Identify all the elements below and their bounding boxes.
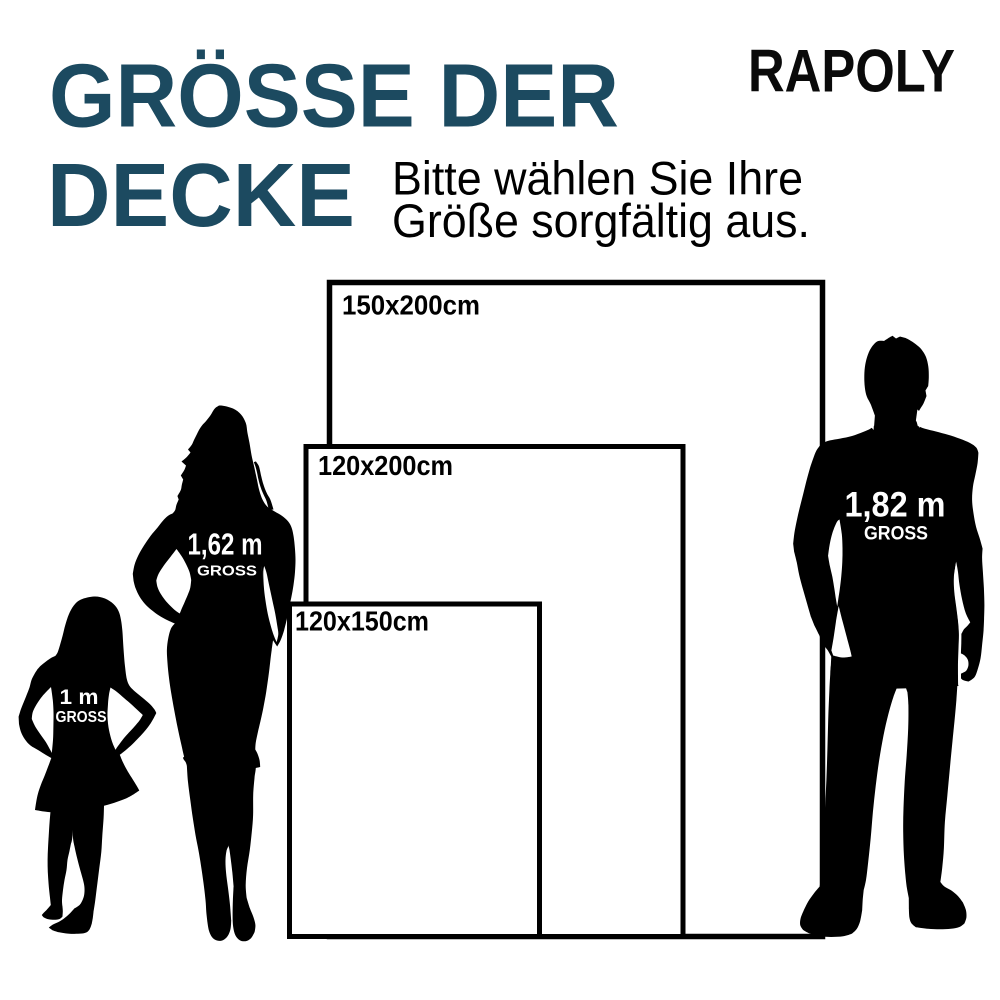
svg-text:RAPOLY: RAPOLY — [748, 38, 955, 105]
svg-text:GROSS: GROSS — [864, 523, 928, 545]
svg-text:GROSS: GROSS — [197, 563, 257, 580]
svg-text:1,62 m: 1,62 m — [188, 527, 263, 562]
svg-text:120x200cm: 120x200cm — [318, 450, 453, 481]
svg-text:1 m: 1 m — [60, 686, 99, 709]
svg-text:GROSS: GROSS — [56, 709, 107, 726]
svg-text:150x200cm: 150x200cm — [342, 290, 480, 321]
svg-text:Größe sorgfältig aus.: Größe sorgfältig aus. — [392, 194, 810, 247]
svg-text:GRÖSSE DER: GRÖSSE DER — [49, 47, 619, 147]
svg-text:DECKE: DECKE — [47, 146, 355, 246]
svg-text:1,82 m: 1,82 m — [845, 486, 946, 525]
svg-text:120x150cm: 120x150cm — [295, 606, 429, 637]
